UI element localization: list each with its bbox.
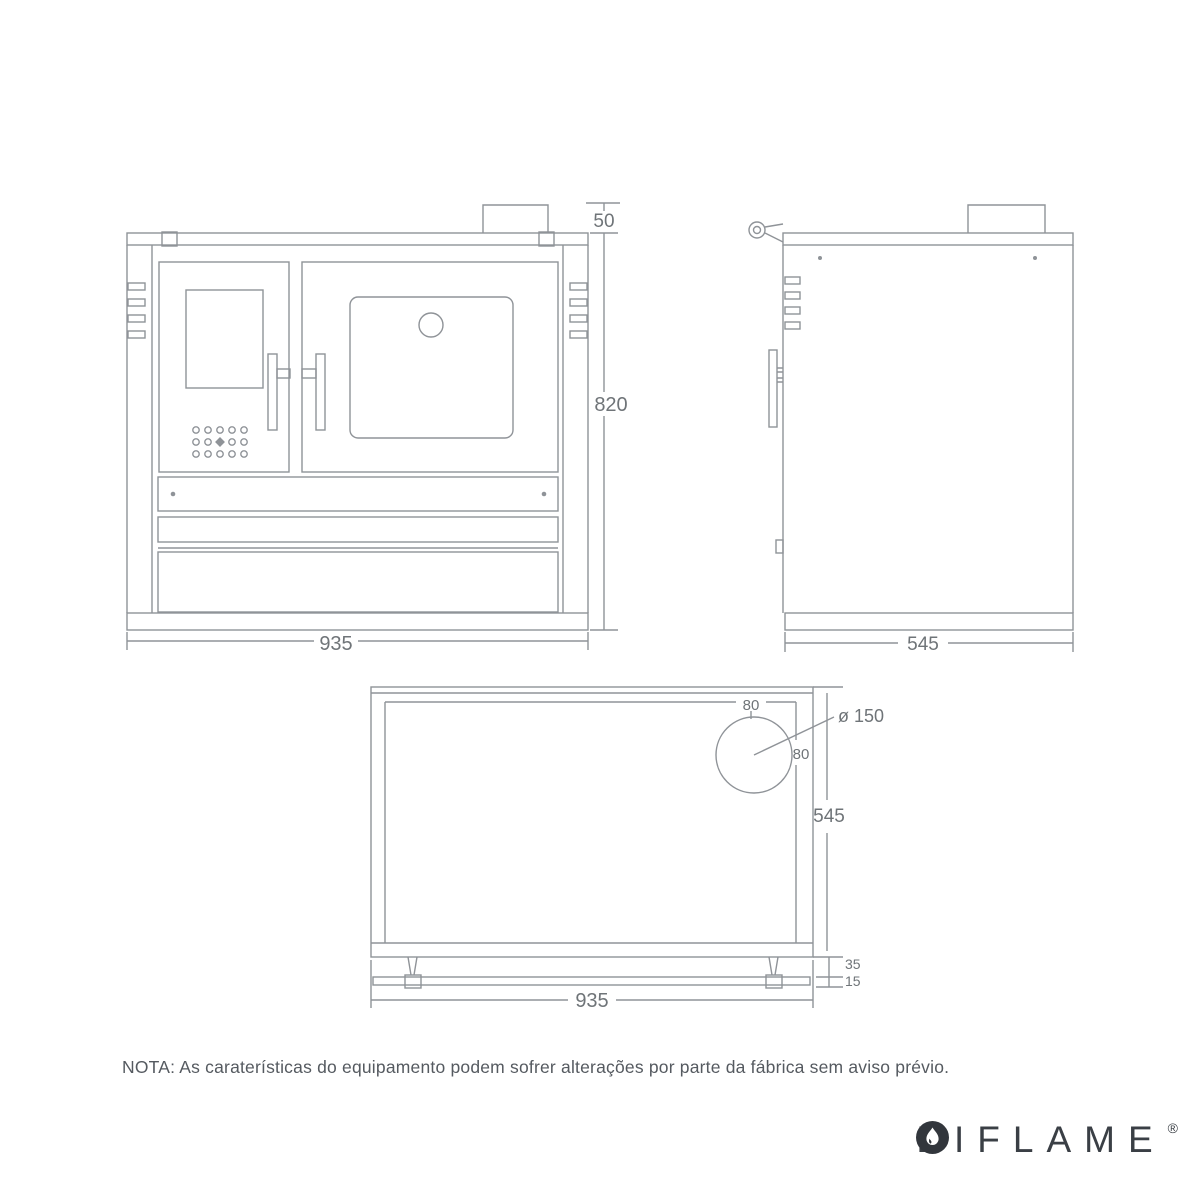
front-top-plate: [127, 233, 588, 245]
oven-handle-mount: [302, 369, 316, 378]
logo-letter: I: [954, 1121, 964, 1158]
front-view: [127, 205, 588, 630]
knob-leader-lines: [765, 224, 783, 242]
flame-icon: [916, 1121, 949, 1154]
dim-rail-bar: 15: [845, 973, 861, 989]
dim-flue-diameter: ø 150: [838, 706, 884, 726]
firebox-door: [159, 262, 289, 472]
logo-letter: A: [1046, 1121, 1071, 1158]
front-dimensions: 50 820 935: [127, 203, 628, 655]
control-buttons-grid: [193, 427, 247, 457]
oven-door-handle: [316, 354, 325, 430]
dim-flue-offset-side: 80: [793, 746, 810, 763]
oven-door: [302, 262, 558, 472]
front-plate-cap-left: [162, 232, 177, 246]
dim-top-depth: 545: [813, 806, 845, 827]
dim-front-height: 820: [594, 394, 627, 416]
stove-dimension-drawing: 50 820 935 545: [0, 0, 1200, 1200]
front-base: [127, 613, 588, 630]
bioflame-logo: B I F L A M E ®: [916, 1121, 1178, 1158]
ash-drawer-upper: [158, 517, 558, 542]
technical-drawing-page: 50 820 935 545: [0, 0, 1200, 1200]
dim-rail-gap: 35: [845, 956, 861, 972]
panel-screw-left: [171, 492, 176, 497]
side-screw-left: [818, 256, 822, 260]
front-panel-strip: [158, 477, 558, 511]
top-outline: [371, 687, 813, 957]
dim-top-width: 935: [575, 990, 608, 1012]
front-side-columns: [127, 245, 588, 613]
side-top-plate: [783, 233, 1073, 245]
side-flue-collar: [968, 205, 1045, 233]
side-door-handle: [769, 350, 777, 427]
side-base: [785, 613, 1073, 630]
logo-letter: F: [977, 1121, 1000, 1158]
front-rail-bar: [373, 977, 810, 985]
side-body: [783, 245, 1073, 613]
logo-letter: E: [1128, 1121, 1153, 1158]
firebox-door-handle: [268, 354, 277, 430]
top-view: 545 35 15 935 80 80 ø 150: [371, 687, 884, 1012]
logo-letter: L: [1013, 1121, 1034, 1158]
firebox-door-window: [186, 290, 263, 388]
factory-note: NOTA: As caraterísticas do equipamento p…: [122, 1057, 949, 1078]
dim-side-depth: 545: [907, 634, 939, 655]
front-flue-collar: [483, 205, 548, 233]
side-vents: [785, 277, 800, 329]
dim-flue-offset-rear: 80: [743, 697, 760, 714]
rail-dim-lines: [816, 957, 843, 987]
side-latch: [776, 540, 783, 553]
front-right-vents: [570, 283, 587, 338]
oven-door-window: [350, 297, 513, 438]
center-button: [215, 437, 225, 447]
top-inner-frame: [371, 702, 813, 943]
rail-brackets: [408, 957, 778, 975]
logo-letter: M: [1084, 1121, 1115, 1158]
side-view: 545: [749, 205, 1073, 655]
panel-screw-right: [542, 492, 547, 497]
front-plate-cap-right: [539, 232, 554, 246]
side-handle-mounts: [777, 368, 783, 382]
oven-window-hole: [419, 313, 443, 337]
registered-trademark-icon: ®: [1168, 1121, 1178, 1135]
front-left-vents: [128, 283, 145, 338]
firebox-handle-mount: [277, 369, 290, 378]
damper-knob-icon: [749, 222, 765, 238]
dim-front-width: 935: [319, 633, 352, 655]
side-screw-right: [1033, 256, 1037, 260]
ash-drawer-lower: [158, 552, 558, 612]
dim-front-flue-height: 50: [593, 211, 614, 232]
